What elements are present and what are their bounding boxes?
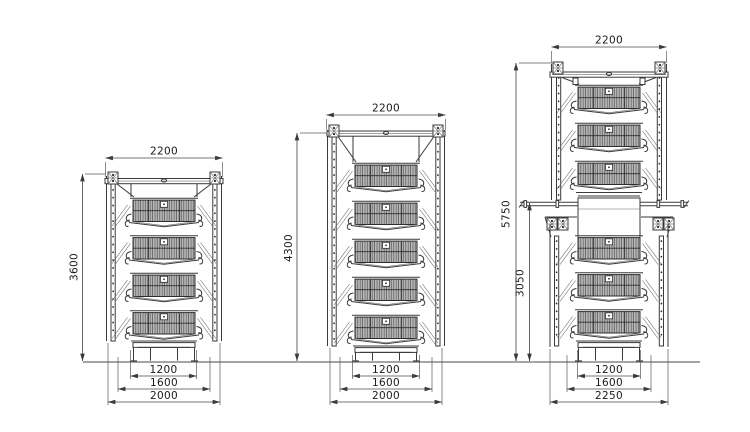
dim-label-base-width: 2250 xyxy=(595,390,623,402)
cage-tier xyxy=(557,236,661,265)
cage-tier xyxy=(557,123,661,152)
dim-inner-width: 1200 xyxy=(353,355,420,379)
dim-label-overall-height: 3600 xyxy=(69,253,81,281)
dim-label-inner-width: 1200 xyxy=(372,364,400,376)
cage-drawing-canvas: 2200 3600 1200 1600 2000 xyxy=(0,0,750,432)
cage-tier xyxy=(557,161,661,190)
cage-tier xyxy=(112,311,216,340)
cage-base xyxy=(352,346,420,361)
corner-bracket xyxy=(433,125,443,137)
dim-top-width: 2200 xyxy=(327,103,446,131)
egg-collection-box xyxy=(578,198,640,238)
dim-overall-height: 5750 xyxy=(501,63,553,361)
corner-bracket xyxy=(553,62,563,74)
top-frame-bar xyxy=(105,179,223,184)
dim-top-width: 2200 xyxy=(106,146,223,178)
upper-droppings-tray xyxy=(576,193,642,197)
dim-label-overall-height: 5750 xyxy=(501,200,513,228)
cage-assembly-h-frame: 2200 5750 3050 1200 1600 2250 xyxy=(501,35,690,406)
dim-label-top-width: 2200 xyxy=(150,146,178,158)
cage-tier xyxy=(112,273,216,302)
dim-label-overall-height: 4300 xyxy=(283,234,295,262)
corner-bracket xyxy=(655,62,665,74)
dim-label-base-width: 2000 xyxy=(150,390,178,402)
corner-bracket xyxy=(329,125,339,137)
dim-inner-width: 1200 xyxy=(131,350,197,379)
dim-label-top-width: 2200 xyxy=(595,35,623,47)
cage-assembly-five-tier: 2200 4300 1200 1600 2000 xyxy=(283,103,446,406)
dim-label-lower-height: 3050 xyxy=(515,269,527,297)
dim-label-inner-width: 1200 xyxy=(595,364,623,376)
cage-base xyxy=(130,341,198,361)
top-frame-bar xyxy=(327,131,445,136)
cage-drawing-page: 2200 3600 1200 1600 2000 xyxy=(0,0,750,432)
corner-bracket xyxy=(210,172,220,184)
dim-inner-width: 1200 xyxy=(578,350,641,379)
dim-label-top-width: 2200 xyxy=(372,103,400,115)
dim-overall-height: 3600 xyxy=(69,174,107,361)
cage-tier xyxy=(112,198,216,227)
cage-tier xyxy=(557,85,661,114)
corner-bracket xyxy=(653,218,663,230)
cage-tier xyxy=(334,201,438,230)
corner-bracket xyxy=(664,218,674,230)
dim-label-inner-width: 1200 xyxy=(150,364,178,376)
cage-frame xyxy=(327,125,445,346)
cage-tier xyxy=(112,236,216,265)
cage-tier xyxy=(334,163,438,192)
cage-assembly-four-tier: 2200 3600 1200 1600 2000 xyxy=(69,146,224,406)
dim-label-mid-width: 1600 xyxy=(372,377,400,389)
corner-bracket xyxy=(558,218,568,230)
dim-label-base-width: 2000 xyxy=(372,390,400,402)
top-frame-bar xyxy=(550,72,668,77)
cage-tier xyxy=(557,310,661,339)
dim-label-mid-width: 1600 xyxy=(150,377,178,389)
corner-bracket xyxy=(547,218,557,230)
cage-tier xyxy=(334,239,438,268)
cage-tier xyxy=(334,277,438,306)
cage-base xyxy=(575,341,643,361)
dim-label-mid-width: 1600 xyxy=(595,377,623,389)
dim-lower-height: 3050 xyxy=(515,203,530,361)
cage-tier xyxy=(557,273,661,302)
corner-bracket xyxy=(108,172,118,184)
dim-overall-height: 4300 xyxy=(283,133,327,361)
cage-tier xyxy=(334,315,438,344)
dim-top-width: 2200 xyxy=(552,35,667,64)
